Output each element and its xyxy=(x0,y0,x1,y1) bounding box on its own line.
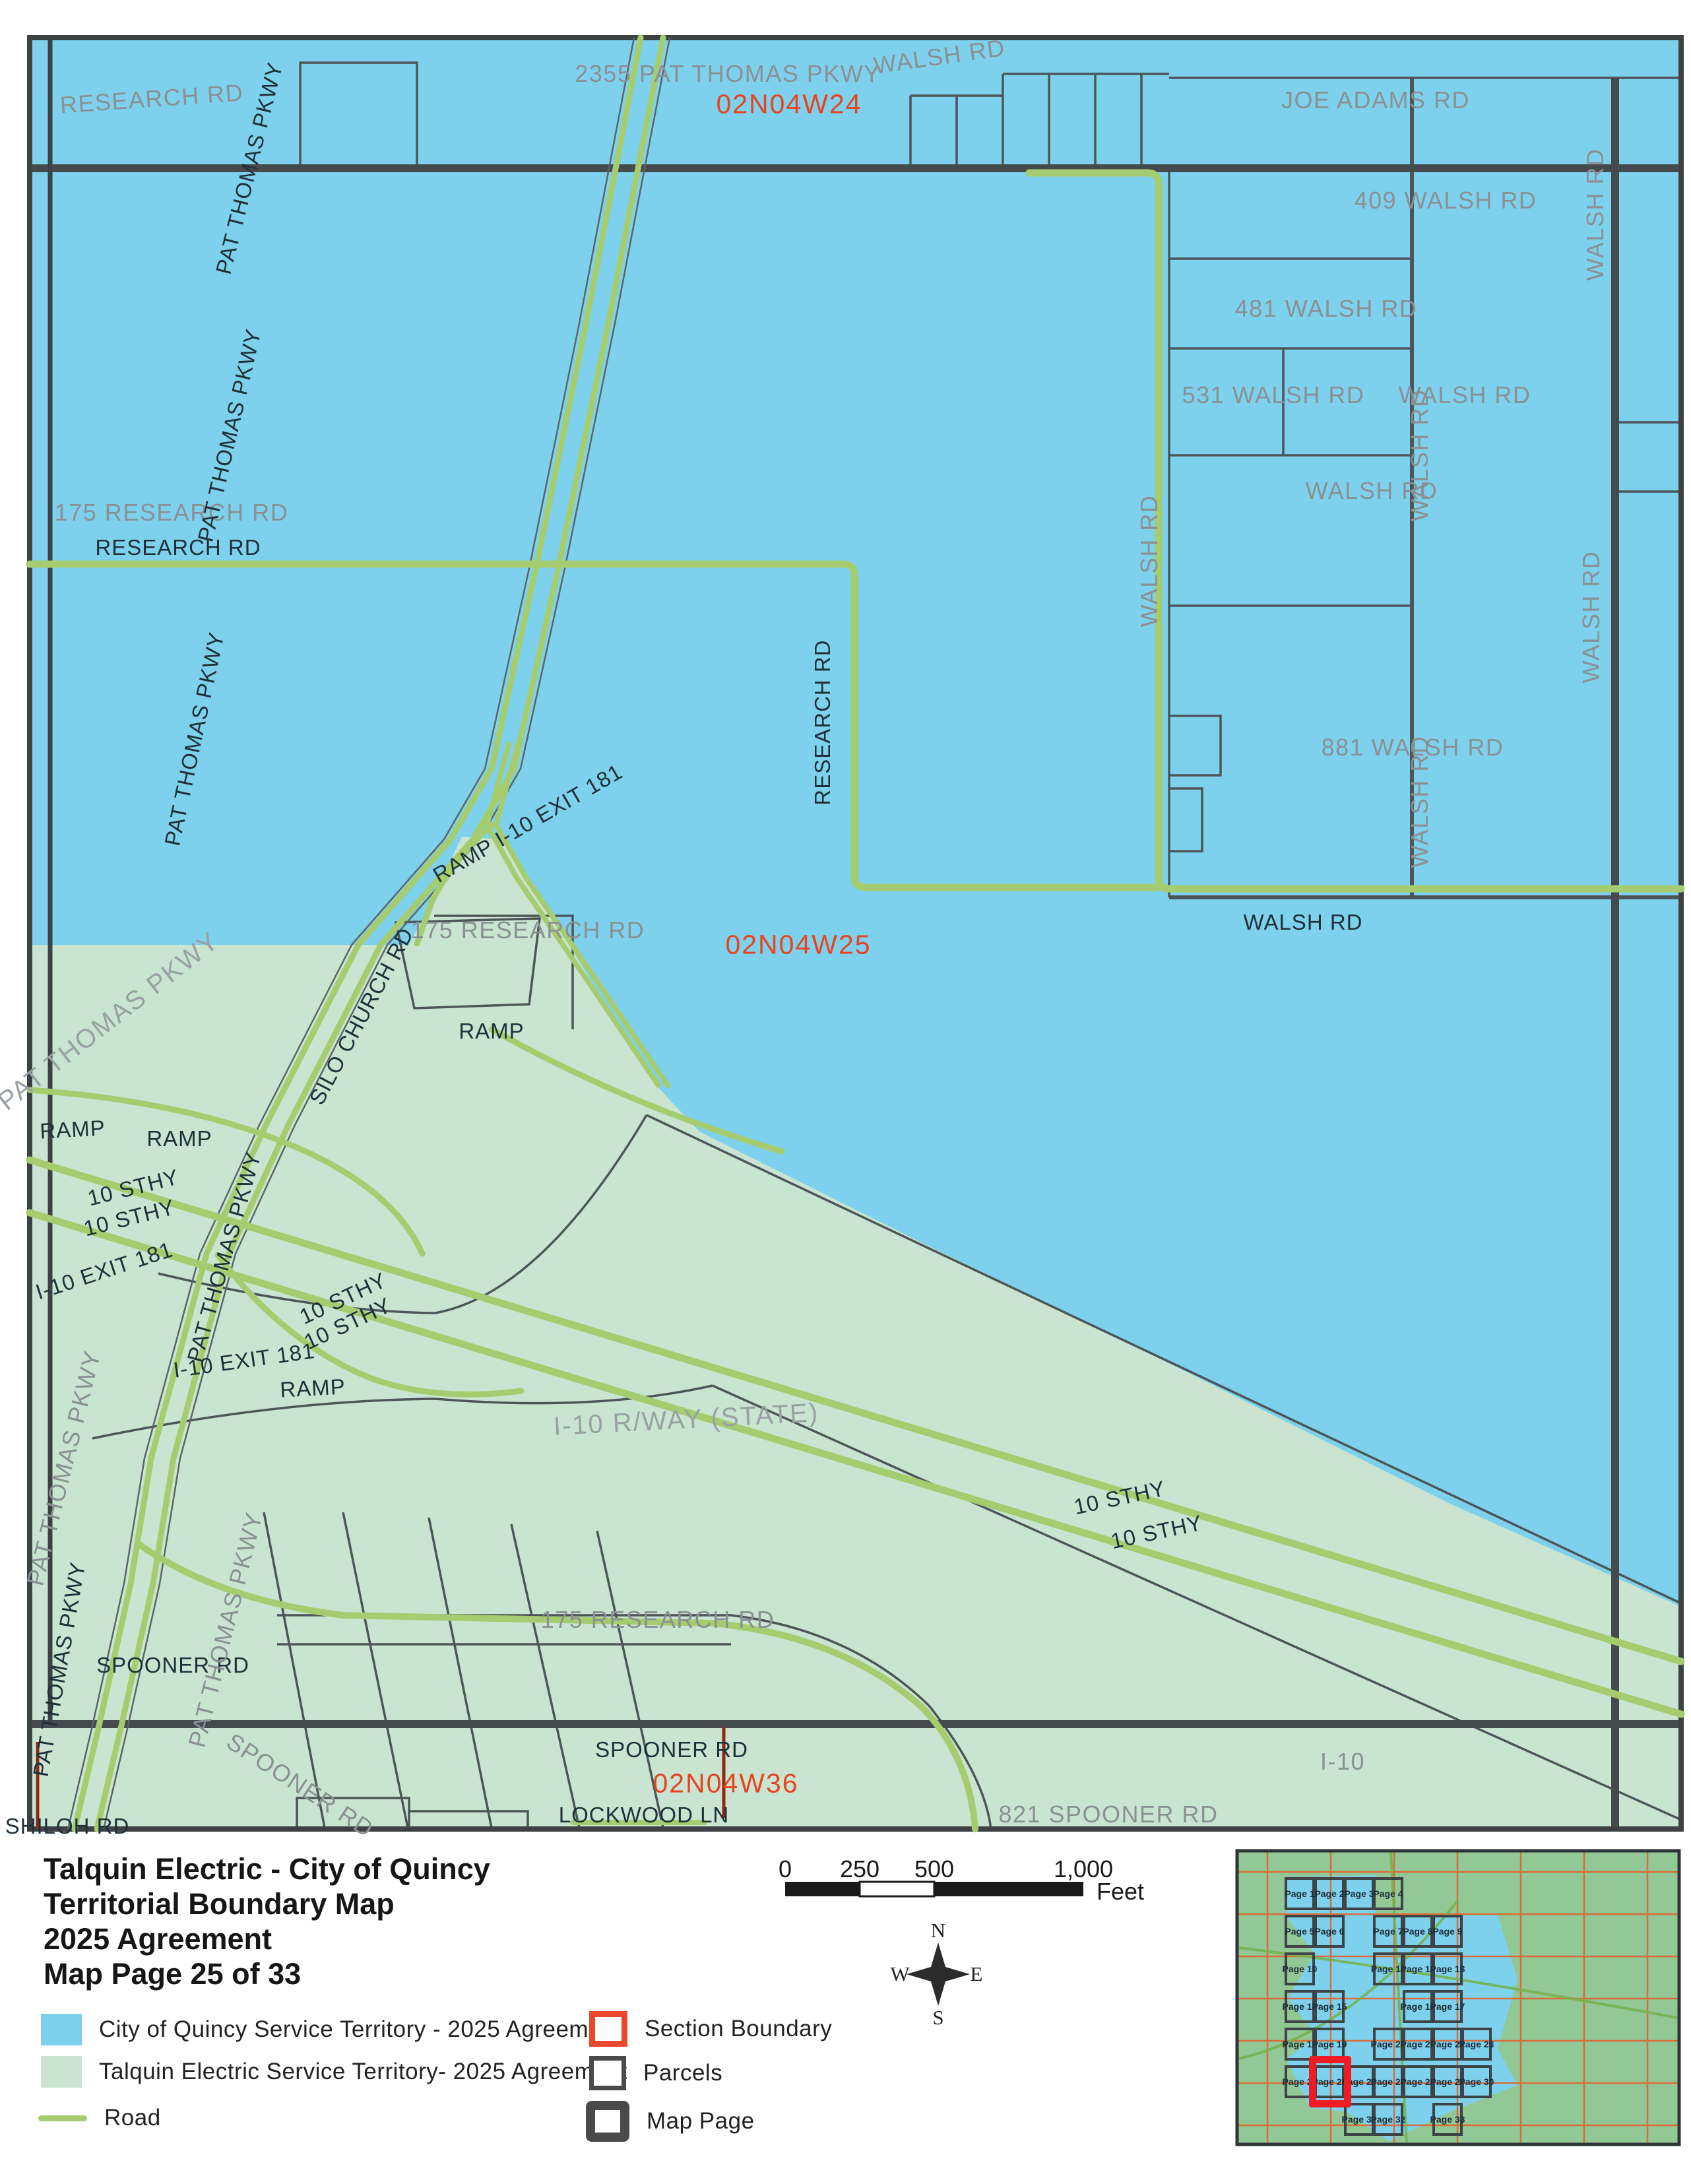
inset-page-cell: Page 13 xyxy=(1432,1952,1463,1985)
inset-page-label: Page 4 xyxy=(1373,1888,1403,1899)
inset-page-cell: Page 31 xyxy=(1344,2103,1374,2136)
inset-page-label: Page 3 xyxy=(1344,1888,1374,1899)
legend-item-section-boundary: Section Boundary xyxy=(589,2011,832,2047)
inset-page-cell: Page 17 xyxy=(1432,1990,1463,2023)
inset-page-cell: Page 32 xyxy=(1373,2103,1403,2136)
legend-item-parcels: Parcels xyxy=(589,2056,722,2090)
inset-page-label: Page 23 xyxy=(1459,2039,1494,2049)
inset-page-label: Page 33 xyxy=(1430,2114,1465,2125)
inset-page-cell: Page 30 xyxy=(1461,2065,1492,2098)
parcels-swatch xyxy=(589,2056,626,2090)
legend-label: Section Boundary xyxy=(645,2016,832,2042)
inset-page-cell: Page 14 xyxy=(1285,1990,1315,2023)
inset-page-label: Page 1 xyxy=(1285,1888,1314,1899)
inset-page-label: Page 32 xyxy=(1371,2114,1406,2125)
compass-star-icon xyxy=(907,1943,970,2006)
inset-page-cell: Page 28 xyxy=(1403,2065,1433,2098)
talquin-territory-swatch xyxy=(41,2056,82,2088)
title-line: Territorial Boundary Map xyxy=(44,1886,490,1921)
inset-page-cell: Page 8 xyxy=(1403,1915,1433,1948)
section-boundary-swatch xyxy=(589,2011,627,2047)
inset-page-label: Page 13 xyxy=(1430,1964,1465,1974)
inset-page-cell: Page 22 xyxy=(1432,2028,1463,2061)
compass-s: S xyxy=(932,2006,943,2030)
title-line: 2025 Agreement xyxy=(44,1921,490,1956)
inset-page-cell: Page 29 xyxy=(1432,2065,1463,2098)
inset-page-label: Page 17 xyxy=(1430,2001,1465,2012)
inset-page-cell: Page 7 xyxy=(1373,1915,1403,1948)
inset-page-label: Page 7 xyxy=(1373,1926,1403,1937)
legend-label: Road xyxy=(104,2105,161,2131)
scale-tick: 250 xyxy=(840,1855,879,1883)
inset-page-cell: Page 10 xyxy=(1285,1952,1315,1985)
scale-tick: 0 xyxy=(779,1855,792,1883)
inset-page-cell: Page 15 xyxy=(1314,1990,1345,2023)
inset-page-label: Page 30 xyxy=(1459,2076,1494,2087)
inset-page-label: Page 19 xyxy=(1312,2039,1347,2049)
legend-label: Talquin Electric Service Territory- 2025… xyxy=(99,2059,627,2085)
inset-current-page-highlight xyxy=(1309,2056,1351,2107)
inset-page-cell: Page 33 xyxy=(1432,2103,1463,2136)
inset-page-cell: Page 16 xyxy=(1403,1990,1433,2023)
inset-page-cell: Page 2 xyxy=(1314,1877,1345,1910)
scale-tick: 500 xyxy=(914,1855,954,1883)
inset-page-cell: Page 20 xyxy=(1373,2028,1403,2061)
inset-page-cell: Page 27 xyxy=(1373,2065,1403,2098)
inset-page-label: Page 6 xyxy=(1314,1926,1344,1937)
map-page: RESEARCH RD 2355 PAT THOMAS PKWY WALSH R… xyxy=(0,0,1691,2184)
inset-page-cell: Page 23 xyxy=(1461,2028,1492,2061)
scale-bar xyxy=(785,1882,1083,1896)
inset-page-label: Page 8 xyxy=(1403,1926,1432,1937)
inset-page-cell: Page 11 xyxy=(1373,1952,1403,1985)
compass-n: N xyxy=(931,1919,945,1943)
legend-item-map-page: Map Page xyxy=(586,2101,755,2142)
inset-page-cell: Page 1 xyxy=(1285,1877,1315,1910)
inset-page-label: Page 9 xyxy=(1432,1926,1462,1937)
legend-label: Map Page xyxy=(647,2108,755,2135)
inset-page-label: Page 2 xyxy=(1314,1888,1344,1899)
inset-page-cell: Page 21 xyxy=(1403,2028,1433,2061)
inset-page-cell: Page 6 xyxy=(1314,1915,1345,1948)
map-page-swatch xyxy=(586,2101,629,2142)
legend-label: City of Quincy Service Territory - 2025 … xyxy=(99,2016,622,2043)
inset-page-cell: Page 5 xyxy=(1285,1915,1315,1948)
map-title-block: Talquin Electric - City of Quincy Territ… xyxy=(44,1851,490,1991)
inset-page-cell: Page 12 xyxy=(1403,1952,1433,1985)
inset-page-label: Page 10 xyxy=(1283,1964,1318,1974)
legend-item-quincy: City of Quincy Service Territory - 2025 … xyxy=(41,2014,622,2045)
scale-unit-label: Feet xyxy=(1097,1878,1144,1906)
legend-item-road: Road xyxy=(38,2105,161,2131)
title-line: Map Page 25 of 33 xyxy=(44,1956,490,1991)
compass-e: E xyxy=(971,1962,983,1986)
road-line-swatch xyxy=(38,2115,87,2121)
compass-w: W xyxy=(890,1962,909,1986)
quincy-territory-swatch xyxy=(41,2014,82,2045)
title-line: Talquin Electric - City of Quincy xyxy=(44,1851,490,1886)
inset-page-cell: Page 3 xyxy=(1344,1877,1374,1910)
inset-page-cell: Page 4 xyxy=(1373,1877,1403,1910)
inset-page-cell: Page 9 xyxy=(1432,1915,1463,1948)
legend-item-talquin: Talquin Electric Service Territory- 2025… xyxy=(41,2056,627,2088)
inset-page-label: Page 15 xyxy=(1312,2001,1347,2012)
legend-label: Parcels xyxy=(643,2060,722,2086)
inset-page-label: Page 5 xyxy=(1285,1926,1314,1937)
